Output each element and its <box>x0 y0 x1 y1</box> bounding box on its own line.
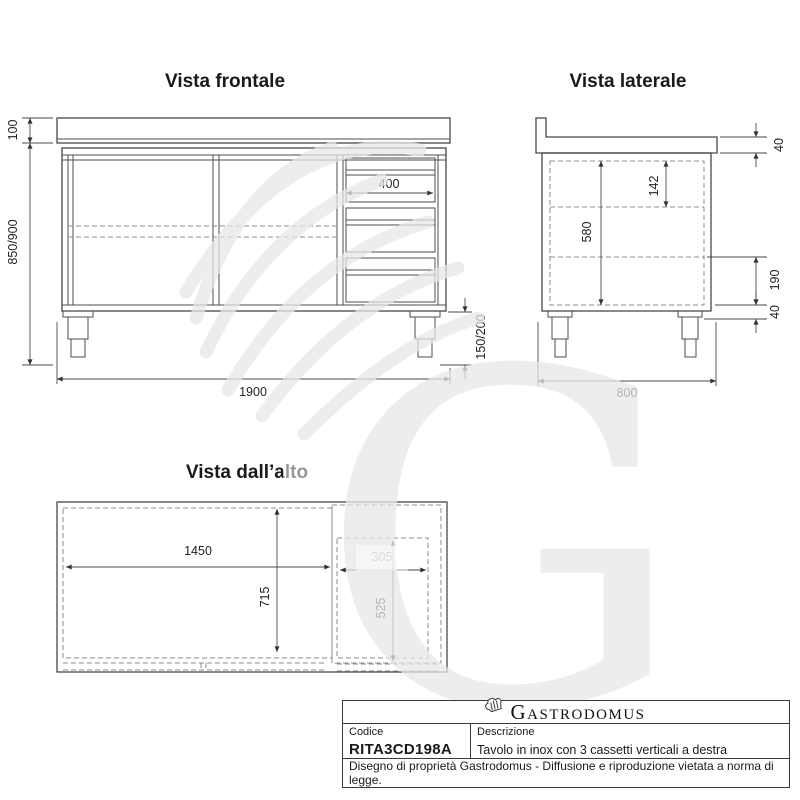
brand-logo: Gastrodomus <box>343 701 789 723</box>
description-value: Tavolo in inox con 3 cassetti verticali … <box>477 743 783 757</box>
top-view-drawing <box>57 502 447 672</box>
dim-side-top-thickness: 40 <box>772 138 786 152</box>
dim-top-inner-depth: 715 <box>258 587 272 608</box>
side-view-title: Vista laterale <box>570 71 687 93</box>
legal-note: Disegno di proprietà Gastrodomus - Diffu… <box>343 758 789 787</box>
brand-name: Gastrodomus <box>510 702 645 723</box>
code-value: RITA3CD198A <box>349 741 464 758</box>
side-view-drawing <box>536 118 767 386</box>
dim-side-drawer-front-height: 142 <box>647 176 661 197</box>
dim-front-leg-height: 150/200 <box>474 314 488 359</box>
title-block-fields: Codice RITA3CD198A Descrizione Tavolo in… <box>343 723 789 758</box>
dim-front-backsplash-height: 100 <box>6 120 20 141</box>
drawing-linework <box>0 0 800 800</box>
dim-side-depth: 800 <box>617 386 638 400</box>
dim-front-body-height: 850/900 <box>6 219 20 264</box>
code-label: Codice <box>349 726 464 740</box>
dim-top-inner-width: 1450 <box>184 544 212 558</box>
dim-front-drawer-width: 400 <box>379 177 400 191</box>
top-view-title: Vista dall’alto <box>186 462 308 484</box>
dim-top-drawer-width: 305 <box>372 550 393 564</box>
code-cell: Codice RITA3CD198A <box>343 724 471 758</box>
dim-side-frame-height: 40 <box>768 305 782 319</box>
dim-front-width: 1900 <box>239 385 267 399</box>
dim-side-inner-height: 580 <box>580 222 594 243</box>
description-label: Descrizione <box>477 726 783 740</box>
dim-side-lower-gap: 190 <box>768 270 782 291</box>
front-view-title: Vista frontale <box>165 71 285 93</box>
technical-drawing-sheet: Vista frontale Vista laterale Vista dall… <box>0 0 800 800</box>
title-block: Gastrodomus Codice RITA3CD198A Descrizio… <box>342 700 790 788</box>
dim-top-drawer-depth: 525 <box>374 598 388 619</box>
description-cell: Descrizione Tavolo in inox con 3 cassett… <box>471 724 789 758</box>
front-view-drawing <box>22 118 472 384</box>
